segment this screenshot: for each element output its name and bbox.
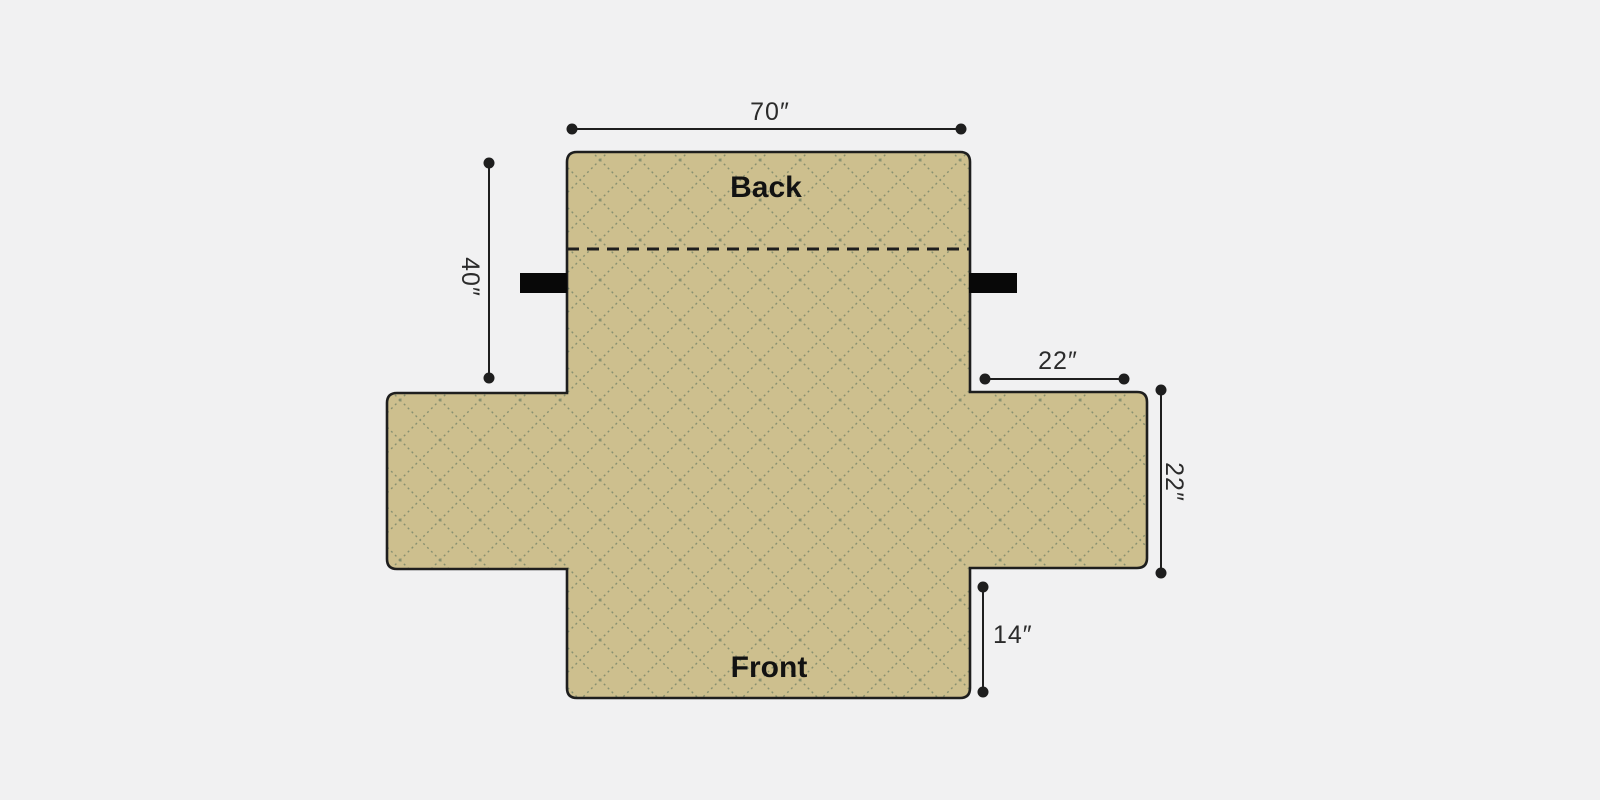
dimension-total-width-label: 70″ <box>750 98 790 126</box>
dimension-total-width: 70″ <box>567 98 967 135</box>
dimension-endpoint-dot <box>1156 568 1167 579</box>
dimension-endpoint-dot <box>484 158 495 169</box>
diagram-svg: 70″ 40″ 22″ 22″ 14″ <box>0 0 1600 800</box>
dimension-arm-width-label: 22″ <box>1038 347 1078 375</box>
dimension-arm-depth-label: 22″ <box>1160 462 1188 502</box>
dimension-endpoint-dot <box>978 582 989 593</box>
dimension-endpoint-dot <box>1119 374 1130 385</box>
dimension-endpoint-dot <box>484 373 495 384</box>
sofa-cover-dimension-diagram: 70″ 40″ 22″ 22″ 14″ <box>0 0 1600 800</box>
dimension-arm-width: 22″ <box>980 347 1130 385</box>
dimension-endpoint-dot <box>978 687 989 698</box>
dimension-back-height-label: 40″ <box>456 257 484 297</box>
dimension-front-height: 14″ <box>978 582 1033 698</box>
dimension-front-height-label: 14″ <box>993 621 1033 649</box>
back-panel-label: Back <box>730 171 802 204</box>
dimension-arm-depth: 22″ <box>1156 385 1189 579</box>
left-strap <box>520 273 567 293</box>
right-strap <box>969 273 1017 293</box>
cover-outline-shape <box>387 152 1147 698</box>
dimension-endpoint-dot <box>567 124 578 135</box>
dimension-endpoint-dot <box>1156 385 1167 396</box>
dimension-endpoint-dot <box>980 374 991 385</box>
front-panel-label: Front <box>731 651 808 684</box>
dimension-endpoint-dot <box>956 124 967 135</box>
dimension-back-height: 40″ <box>456 158 495 384</box>
